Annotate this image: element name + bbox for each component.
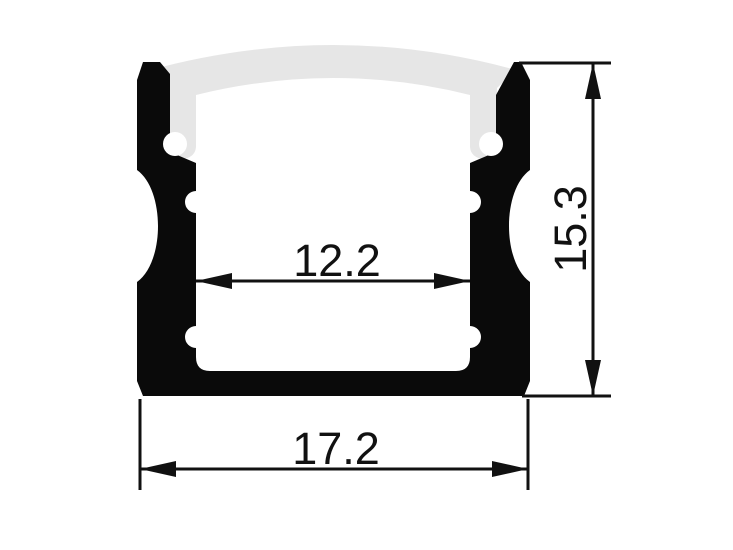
height-arrow-top bbox=[585, 63, 601, 99]
diffuser-cover bbox=[150, 45, 516, 159]
outer-width-label: 17.2 bbox=[292, 423, 380, 474]
diffuser-clip-notch-left bbox=[163, 132, 187, 156]
dimension-outer-width: 17.2 bbox=[140, 399, 528, 490]
dimension-height: 15.3 bbox=[519, 63, 611, 396]
drawing-canvas: 12.2 17.2 15.3 bbox=[0, 0, 733, 550]
profile-cross-section-drawing: 12.2 17.2 15.3 bbox=[0, 0, 733, 550]
inner-groove-upper-left bbox=[185, 191, 207, 213]
dimension-inner-width: 12.2 bbox=[196, 235, 470, 289]
diffuser-clip-notch-right bbox=[479, 132, 503, 156]
inner-groove-lower-right bbox=[459, 326, 481, 348]
height-label: 15.3 bbox=[545, 185, 596, 273]
inner-width-label: 12.2 bbox=[293, 235, 381, 286]
inner-width-arrow-left bbox=[196, 273, 232, 289]
outer-width-arrow-right bbox=[492, 461, 528, 477]
inner-width-arrow-right bbox=[434, 273, 470, 289]
inner-groove-upper-right bbox=[459, 191, 481, 213]
outer-width-arrow-left bbox=[140, 461, 176, 477]
height-arrow-bottom bbox=[585, 360, 601, 396]
inner-groove-lower-left bbox=[185, 326, 207, 348]
